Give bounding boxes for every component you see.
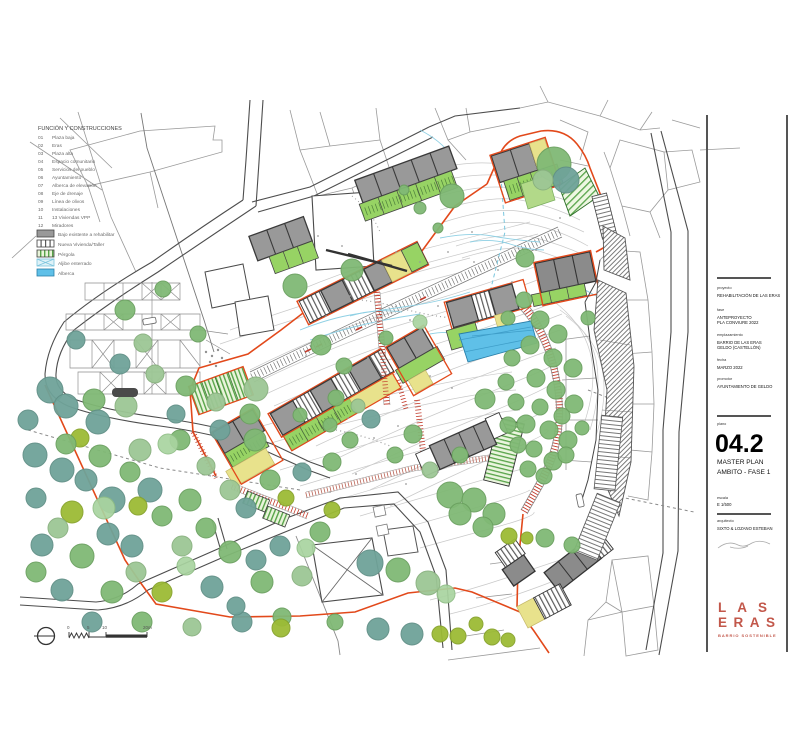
- svg-text:08: 08: [38, 191, 44, 197]
- svg-text:11: 11: [38, 215, 43, 221]
- svg-text:Pérgola: Pérgola: [58, 252, 75, 258]
- svg-text:10: 10: [102, 625, 108, 630]
- svg-text:06: 06: [38, 175, 44, 181]
- svg-text:Miradores: Miradores: [52, 223, 74, 229]
- svg-text:Línea de olivos: Línea de olivos: [52, 199, 85, 205]
- svg-text:13 Viviendas VPP: 13 Viviendas VPP: [52, 215, 90, 221]
- svg-text:Plaza baja: Plaza baja: [52, 135, 75, 141]
- svg-text:FUNCIÓN Y CONSTRUCCIONES: FUNCIÓN Y CONSTRUCCIONES: [38, 125, 122, 132]
- svg-text:Nueva Vivienda/Taller: Nueva Vivienda/Taller: [58, 242, 105, 248]
- svg-text:10: 10: [38, 207, 44, 213]
- svg-text:05: 05: [38, 167, 44, 173]
- svg-text:Alberca: Alberca: [58, 271, 75, 277]
- svg-text:Aljibe enterrado: Aljibe enterrado: [58, 261, 92, 267]
- svg-text:Espacio comunitario: Espacio comunitario: [52, 159, 96, 165]
- svg-text:Eje de drenaje: Eje de drenaje: [52, 191, 83, 197]
- svg-text:20m: 20m: [143, 625, 152, 630]
- svg-text:04: 04: [38, 159, 44, 165]
- svg-text:Instalaciones: Instalaciones: [52, 207, 81, 213]
- svg-text:Bajo existente a rehabilitar: Bajo existente a rehabilitar: [58, 232, 115, 238]
- svg-text:Eras: Eras: [52, 143, 62, 149]
- svg-text:Alberca de elevación: Alberca de elevación: [52, 183, 97, 189]
- svg-text:Plaza alta: Plaza alta: [52, 151, 73, 157]
- svg-text:Ayuntamiento: Ayuntamiento: [52, 175, 82, 181]
- svg-text:09: 09: [38, 199, 44, 205]
- svg-text:Servicios del pueblo: Servicios del pueblo: [52, 167, 95, 173]
- svg-text:01: 01: [38, 135, 44, 141]
- svg-text:03: 03: [38, 151, 44, 157]
- svg-text:12: 12: [38, 223, 44, 229]
- svg-text:07: 07: [38, 183, 44, 189]
- svg-text:02: 02: [38, 143, 44, 149]
